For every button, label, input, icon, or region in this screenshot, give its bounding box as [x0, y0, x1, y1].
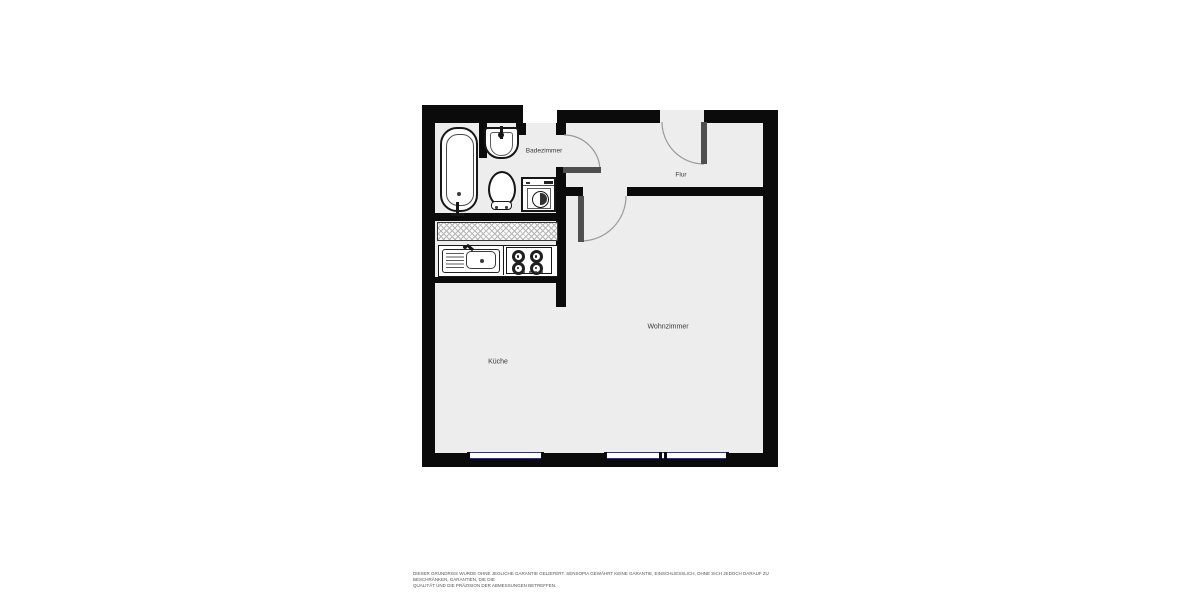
counter-divider	[503, 246, 504, 275]
window-cap	[541, 452, 544, 459]
bathtub-faucet-bar	[451, 213, 464, 216]
window-mullion	[659, 452, 662, 459]
toilet-base	[491, 201, 512, 210]
washer-button	[526, 182, 530, 185]
bathroom-door-arc	[564, 135, 600, 171]
livingroom-door-leaf	[578, 196, 584, 242]
entrance-door-leaf	[701, 122, 707, 164]
label-wohnzimmer: Wohnzimmer	[647, 324, 688, 331]
bathtub-drain	[457, 192, 461, 196]
window-cap	[467, 452, 470, 459]
bathtub	[440, 127, 478, 212]
window-cap	[726, 452, 729, 459]
label-badezimmer: Badezimmer	[526, 148, 562, 155]
window	[604, 452, 729, 459]
toilet-foot	[505, 206, 508, 209]
disclaimer: DIESER GRUNDRISS WURDE OHNE JEGLICHE GAR…	[413, 571, 803, 588]
entrance-door-arc	[662, 122, 704, 164]
label-flur: Flur	[675, 172, 686, 179]
disclaimer-line1: DIESER GRUNDRISS WURDE OHNE JEGLICHE GAR…	[413, 571, 803, 583]
kitchen-sink-basin	[466, 251, 496, 269]
washer-display	[544, 181, 553, 184]
stove-knob	[523, 271, 526, 274]
window	[467, 452, 544, 459]
kitchen-sink	[442, 249, 500, 273]
washer-drum-door	[540, 193, 547, 205]
window-mullion	[664, 452, 667, 459]
kitchen-counter	[438, 245, 558, 277]
kitchen-faucet-knob	[463, 245, 467, 249]
washing-machine	[521, 177, 556, 212]
toilet-foot	[495, 206, 498, 209]
floor-plan: Badezimmer Flur Wohnzimmer Küche	[422, 110, 778, 467]
washer-drum	[532, 191, 549, 208]
kitchen-sink-drain	[480, 259, 484, 263]
disclaimer-line2: QUALITÄT UND DIE PRÄZISION DER ABMESSUNG…	[413, 583, 803, 589]
livingroom-door-arc	[581, 196, 626, 241]
shaft-hatch-band	[437, 222, 558, 241]
label-kueche: Küche	[488, 359, 508, 366]
stove-knob	[541, 271, 544, 274]
kitchen-sink-drainboard	[446, 253, 464, 268]
kitchen-faucet	[465, 243, 473, 250]
washbasin-faucet-knob	[498, 132, 504, 138]
washer-panel-line	[523, 185, 554, 186]
window-cap	[604, 452, 607, 459]
bathroom-door-leaf	[563, 167, 601, 173]
stove	[506, 247, 552, 274]
